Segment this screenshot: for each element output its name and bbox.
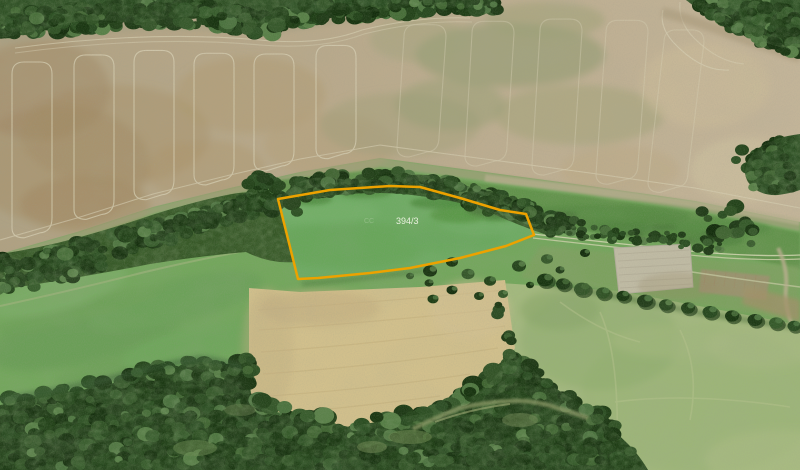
svg-text:394/3: 394/3 — [396, 216, 419, 226]
svg-text:CC: CC — [364, 218, 374, 225]
